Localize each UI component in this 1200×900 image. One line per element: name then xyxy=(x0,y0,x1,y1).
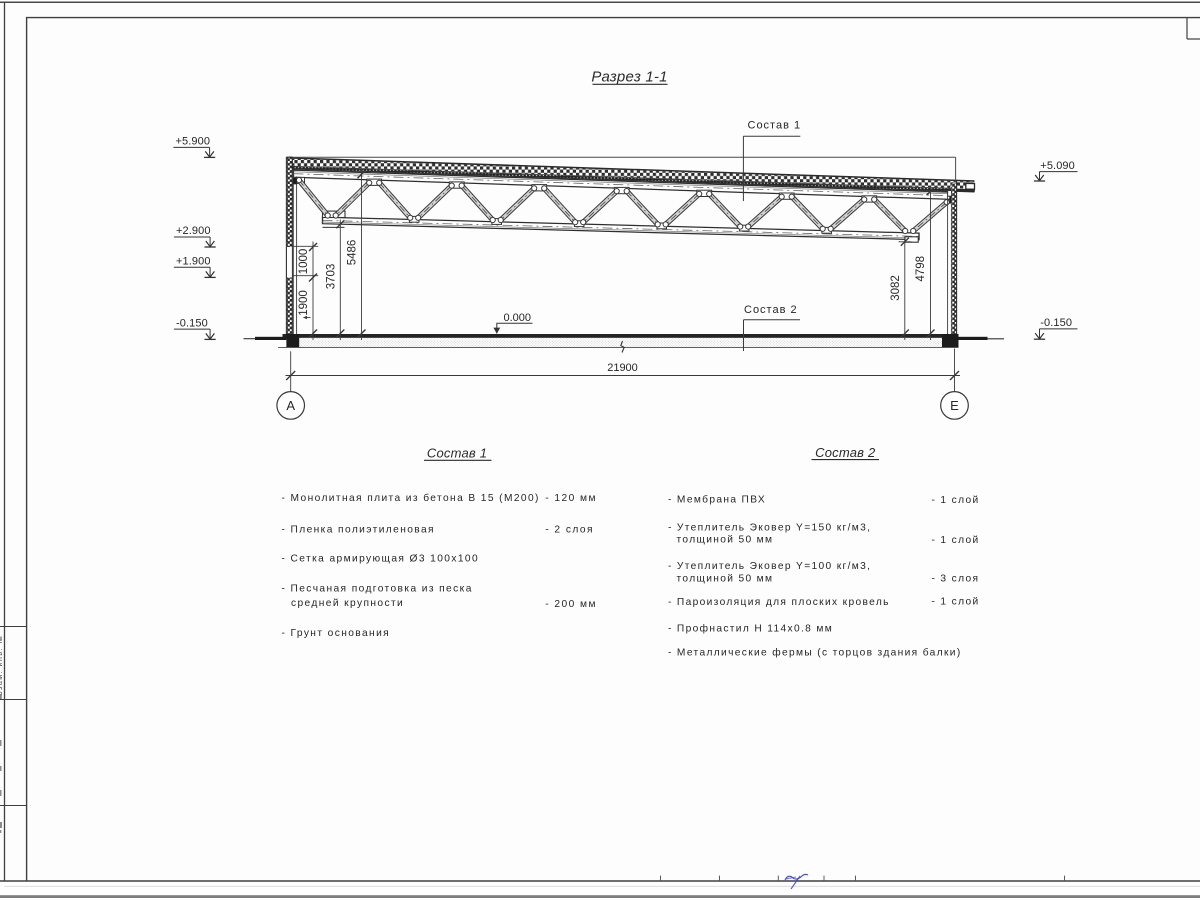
svg-text:Состав 1: Состав 1 xyxy=(748,119,802,131)
svg-text:- 2 слоя: - 2 слоя xyxy=(545,525,594,536)
svg-text:Состав 2: Состав 2 xyxy=(744,304,798,316)
svg-text:+5.900: +5.900 xyxy=(176,136,211,148)
svg-text:- Песчаная подготовка из песка: - Песчаная подготовка из песка xyxy=(282,583,473,594)
svg-text:1900: 1900 xyxy=(298,290,310,316)
svg-text:1000: 1000 xyxy=(298,249,310,275)
svg-text:21900: 21900 xyxy=(607,362,638,374)
svg-text:- Грунт основания: - Грунт основания xyxy=(282,628,391,639)
svg-text:- 3 слоя: - 3 слоя xyxy=(932,574,980,585)
svg-text:средней крупности: средней крупности xyxy=(291,598,404,609)
svg-text:- Сетка армирующая Ø3 100х100: - Сетка армирующая Ø3 100х100 xyxy=(282,554,480,565)
svg-text:толщиной 50 мм: толщиной 50 мм xyxy=(677,535,774,546)
svg-text:3703: 3703 xyxy=(326,264,338,290)
svg-text:- 1 слой: - 1 слой xyxy=(932,535,980,546)
svg-text:- Металлические фермы (с торцо: - Металлические фермы (с торцов здания б… xyxy=(668,646,962,658)
svg-text:толщиной 50 мм: толщиной 50 мм xyxy=(677,573,774,584)
svg-text:- Монолитная плита из бетона В: - Монолитная плита из бетона В 15 (М200) xyxy=(282,492,540,504)
svg-text:Е: Е xyxy=(950,398,959,413)
svg-text:- Профнастил Н 114х0.8 мм: - Профнастил Н 114х0.8 мм xyxy=(668,622,833,634)
svg-text:- 1 слой: - 1 слой xyxy=(932,495,980,506)
svg-text:- Пароизоляция для плоских кро: - Пароизоляция для плоских кровель xyxy=(668,597,890,608)
svg-text:Состав 2: Состав 2 xyxy=(815,445,876,460)
svg-text:- 1 слой: - 1 слой xyxy=(932,597,980,608)
svg-text:-0.150: -0.150 xyxy=(176,317,208,329)
svg-text:5486: 5486 xyxy=(347,240,359,266)
svg-text:- Утеплитель Эковер Y=100 кг/м: - Утеплитель Эковер Y=100 кг/м3, xyxy=(668,561,871,572)
svg-text:- 120 мм: - 120 мм xyxy=(545,493,597,504)
svg-text:4798: 4798 xyxy=(915,256,927,282)
svg-text:+2.900: +2.900 xyxy=(176,225,211,237)
svg-text:0.000: 0.000 xyxy=(504,312,532,324)
svg-text:+1.900: +1.900 xyxy=(176,255,211,267)
svg-text:Разрез 1-1: Разрез 1-1 xyxy=(591,69,667,86)
svg-text:+5.090: +5.090 xyxy=(1040,160,1075,172)
svg-text:- Пленка полиэтиленовая: - Пленка полиэтиленовая xyxy=(282,525,435,536)
svg-text:- 200 мм: - 200 мм xyxy=(545,599,597,610)
svg-text:А: А xyxy=(286,398,295,413)
svg-text:Состав 1: Состав 1 xyxy=(427,445,487,460)
svg-text:- Утеплитель Эковер Y=150 кг/м: - Утеплитель Эковер Y=150 кг/м3, xyxy=(668,522,871,533)
svg-text:-0.150: -0.150 xyxy=(1040,317,1072,329)
svg-text:3082: 3082 xyxy=(890,275,902,301)
svg-text:- Мембрана ПВХ: - Мембрана ПВХ xyxy=(668,494,766,506)
